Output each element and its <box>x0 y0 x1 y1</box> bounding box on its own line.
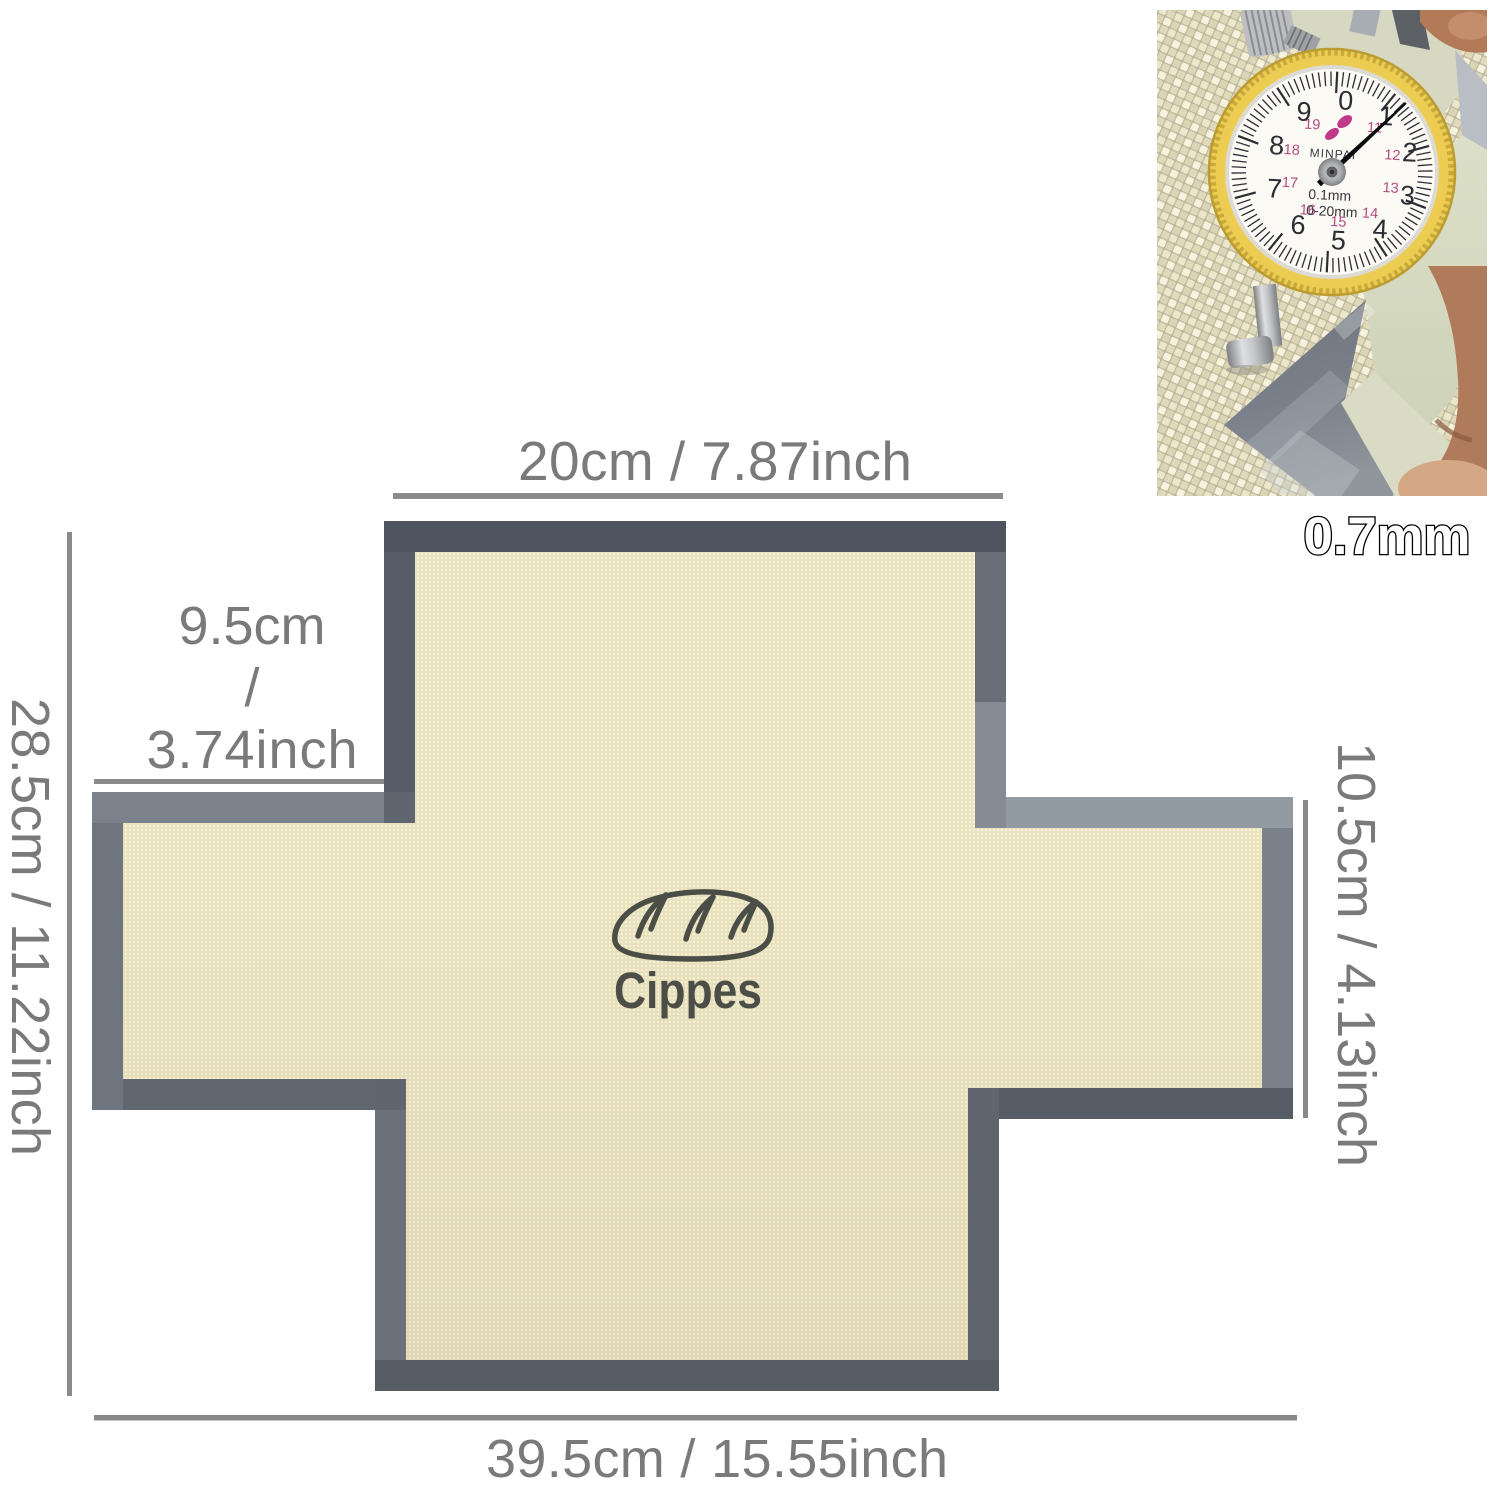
svg-text:Cippes: Cippes <box>614 962 762 1019</box>
svg-text:12: 12 <box>1384 147 1401 164</box>
svg-text:3.74inch: 3.74inch <box>147 720 358 780</box>
svg-text:14: 14 <box>1362 206 1379 223</box>
svg-text:0.7mm: 0.7mm <box>1304 507 1471 566</box>
svg-text:0-20mm: 0-20mm <box>1306 202 1358 221</box>
svg-text:2: 2 <box>1401 137 1418 168</box>
svg-text:17: 17 <box>1281 175 1298 192</box>
svg-text:9.5cm: 9.5cm <box>178 596 325 656</box>
svg-text:39.5cm / 15.55inch: 39.5cm / 15.55inch <box>486 1429 948 1489</box>
svg-text:13: 13 <box>1382 180 1399 197</box>
svg-text:7: 7 <box>1266 173 1283 204</box>
svg-text:3: 3 <box>1399 180 1416 211</box>
svg-text:20cm / 7.87inch: 20cm / 7.87inch <box>518 430 912 492</box>
svg-text:19: 19 <box>1304 117 1321 134</box>
svg-text:28.5cm / 11.22inch: 28.5cm / 11.22inch <box>0 698 60 1156</box>
svg-text:18: 18 <box>1283 142 1300 159</box>
svg-text:/: / <box>244 658 259 718</box>
svg-text:10.5cm / 4.13inch: 10.5cm / 4.13inch <box>1326 742 1386 1167</box>
svg-text:0: 0 <box>1337 85 1354 116</box>
